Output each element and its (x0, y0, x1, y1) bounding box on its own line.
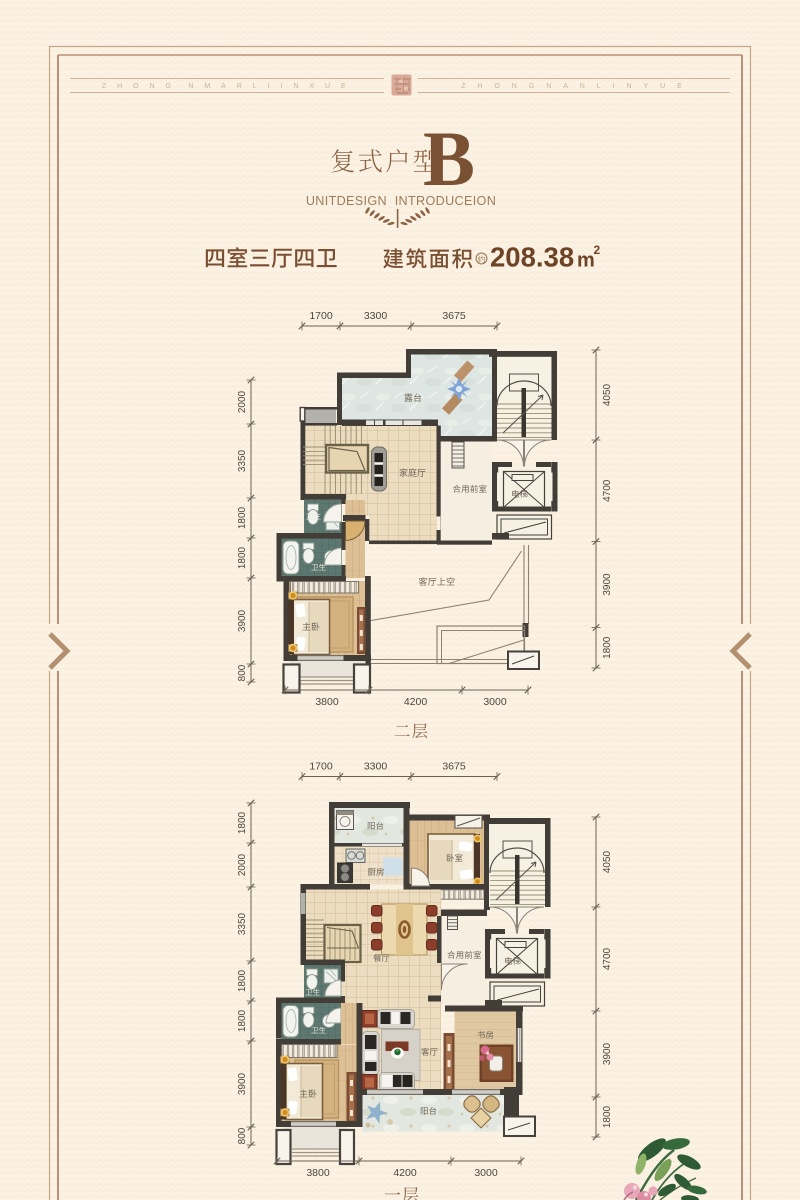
svg-text:1800: 1800 (602, 1105, 613, 1128)
svg-text:4200: 4200 (404, 696, 428, 708)
svg-text:3800: 3800 (306, 1167, 330, 1179)
svg-text:208.38: 208.38 (490, 242, 574, 273)
svg-text:2: 2 (594, 243, 601, 257)
svg-text:3000: 3000 (483, 696, 507, 708)
svg-text:1800: 1800 (237, 546, 248, 569)
svg-text:2000: 2000 (237, 390, 248, 413)
svg-text:3000: 3000 (474, 1167, 498, 1179)
svg-text:3350: 3350 (237, 449, 248, 472)
svg-text:1800: 1800 (237, 811, 248, 834)
svg-text:1800: 1800 (237, 506, 248, 529)
svg-text:Z H O N G N A N L I N Y U E: Z H O N G N A N L I N Y U E (461, 83, 687, 90)
svg-text:1800: 1800 (237, 1009, 248, 1032)
svg-text:1700: 1700 (309, 310, 333, 322)
svg-text:UNITDESIGN INTRODUCEION: UNITDESIGN INTRODUCEION (306, 194, 496, 208)
svg-text:4050: 4050 (602, 850, 613, 873)
svg-text:3300: 3300 (364, 761, 388, 773)
svg-text:2000: 2000 (237, 853, 248, 876)
svg-text:800: 800 (237, 1127, 248, 1144)
svg-text:3900: 3900 (602, 573, 613, 596)
svg-text:800: 800 (237, 664, 248, 681)
svg-text:Z H O N G N M A R L I I N X U: Z H O N G N M A R L I I N X U E (102, 83, 350, 90)
svg-text:3900: 3900 (237, 1072, 248, 1095)
svg-text:3800: 3800 (315, 696, 339, 708)
svg-text:3675: 3675 (442, 310, 466, 322)
svg-text:3900: 3900 (237, 609, 248, 632)
svg-text:3300: 3300 (364, 310, 388, 322)
svg-text:1800: 1800 (602, 636, 613, 659)
svg-text:4050: 4050 (602, 383, 613, 406)
svg-text:3675: 3675 (442, 761, 466, 773)
svg-text:1800: 1800 (237, 969, 248, 992)
svg-text:B: B (423, 115, 475, 202)
svg-text:3900: 3900 (602, 1042, 613, 1065)
svg-text:3350: 3350 (237, 912, 248, 935)
svg-text:m: m (577, 250, 595, 272)
svg-text:1700: 1700 (309, 761, 333, 773)
svg-text:4700: 4700 (602, 947, 613, 970)
svg-text:4700: 4700 (602, 479, 613, 502)
svg-text:4200: 4200 (393, 1167, 417, 1179)
